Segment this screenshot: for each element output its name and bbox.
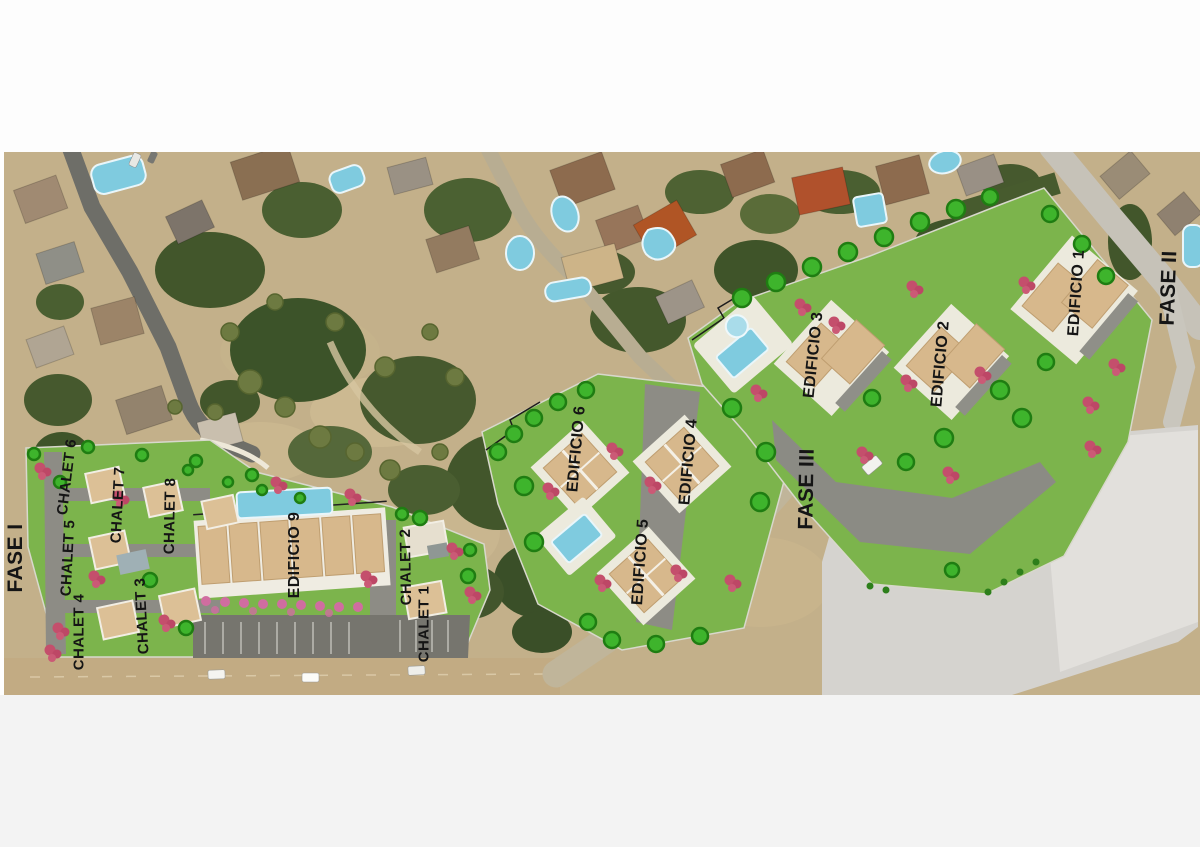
top-margin [0,0,1200,152]
label-edificio-9: EDIFICIO 9 [286,512,304,599]
aerial-photo-canvas [0,152,1200,695]
label-chalet-8: CHALET 8 [161,478,179,555]
label-chalet-2: CHALET 2 [397,529,415,606]
label-fase-ii: FASE II [1156,250,1183,326]
label-chalet-4: CHALET 4 [71,594,88,671]
label-chalet-1: CHALET 1 [416,586,433,663]
aerial-photo [0,152,1200,695]
site-plan-image: FASE I FASE II FASE III CHALET 1 CHALET … [0,0,1200,847]
fase1-pool [236,488,332,519]
label-fase-iii: FASE III [794,448,819,530]
label-fase-i: FASE I [4,524,28,593]
bottom-margin [0,695,1200,847]
